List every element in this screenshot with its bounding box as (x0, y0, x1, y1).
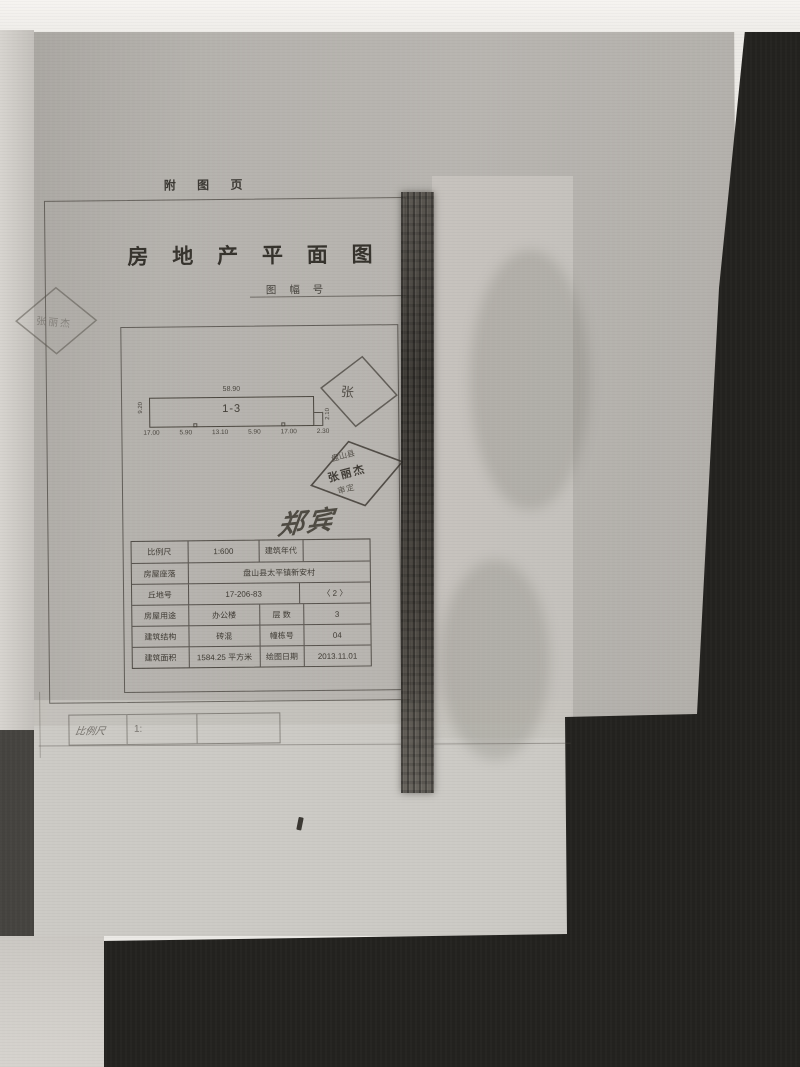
handwritten-signature: 郑宾 (276, 498, 339, 542)
dim-value: 5.90 (248, 429, 261, 436)
table-row: 建筑面积 1584.25 平方米 绘图日期 2013.11.01 (133, 644, 371, 667)
dim-value: 13.10 (212, 429, 228, 436)
usage-label: 房屋用途 (132, 605, 188, 626)
scanned-photo: 附 图 页 房 地 产 平 面 图 图 幅 号 58.90 1-3 17.00 … (0, 0, 800, 1067)
dim-value: 17.00 (281, 428, 297, 435)
block-no-label: 幢栋号 (259, 625, 303, 645)
structure-value: 砖混 (188, 626, 260, 647)
dim-value: 2.30 (317, 428, 330, 435)
table-row: 比例尺 1:600 建筑年代 (132, 539, 370, 562)
table-row: 房屋座落 盘山县太平镇新安村 (132, 560, 370, 583)
door-mark (281, 422, 285, 426)
underlay-scale-table: 比例尺 1: (68, 712, 280, 745)
block-no-value: 04 (303, 624, 371, 645)
structure-label: 建筑结构 (132, 626, 188, 647)
diamond-stamp-upper: 张 (316, 351, 403, 432)
parcel-extra: 〈 2 〉 (299, 582, 371, 603)
underlay-scale-value: 1: (127, 714, 197, 744)
plan-left-dimension: 9.20 (138, 402, 144, 414)
document-content: 附 图 页 房 地 产 平 面 图 图 幅 号 58.90 1-3 17.00 … (0, 0, 800, 1067)
stamp-name-text: 张 (340, 381, 359, 402)
location-value: 盘山县太平镇新安村 (187, 561, 370, 583)
table-row: 丘地号 17-206-83 〈 2 〉 (132, 581, 370, 604)
floors-label: 层 数 (259, 604, 303, 624)
building-unit-label: 1-3 (149, 402, 314, 416)
table-row: 房屋用途 办公楼 层 数 3 (132, 602, 370, 625)
location-label: 房屋座落 (132, 563, 188, 584)
area-value: 1584.25 平方米 (188, 647, 260, 668)
scale-value: 1:600 (187, 541, 259, 563)
floors-value: 3 (303, 603, 371, 624)
parcel-label: 丘地号 (132, 584, 188, 605)
underlay-empty-cell (196, 713, 280, 743)
area-label: 建筑面积 (133, 647, 189, 668)
draw-date-label: 绘图日期 (260, 646, 304, 666)
underlay-edge-line (39, 692, 41, 758)
usage-value: 办公楼 (188, 605, 260, 626)
dim-value: 17.00 (143, 430, 159, 437)
build-year-label: 建筑年代 (258, 540, 302, 561)
table-row: 建筑结构 砖混 幢栋号 04 (132, 623, 370, 646)
build-year-value (302, 539, 370, 561)
dim-value: 5.90 (179, 429, 192, 436)
draw-date-value: 2013.11.01 (303, 645, 371, 666)
property-info-table: 比例尺 1:600 建筑年代 房屋座落 盘山县太平镇新安村 丘地号 17-206… (131, 538, 372, 669)
underlay-scale-label: 比例尺 (67, 715, 129, 745)
scale-label: 比例尺 (132, 541, 188, 563)
document-title: 房 地 产 平 面 图 (117, 238, 391, 271)
parcel-value: 17-206-83 (188, 583, 299, 604)
binding-shadow-strip (401, 192, 434, 793)
ink-mark (296, 817, 303, 831)
door-mark (193, 423, 197, 427)
diamond-stamp-faint: 张丽杰 (14, 285, 99, 356)
attachment-page-label: 附 图 页 (164, 176, 252, 194)
